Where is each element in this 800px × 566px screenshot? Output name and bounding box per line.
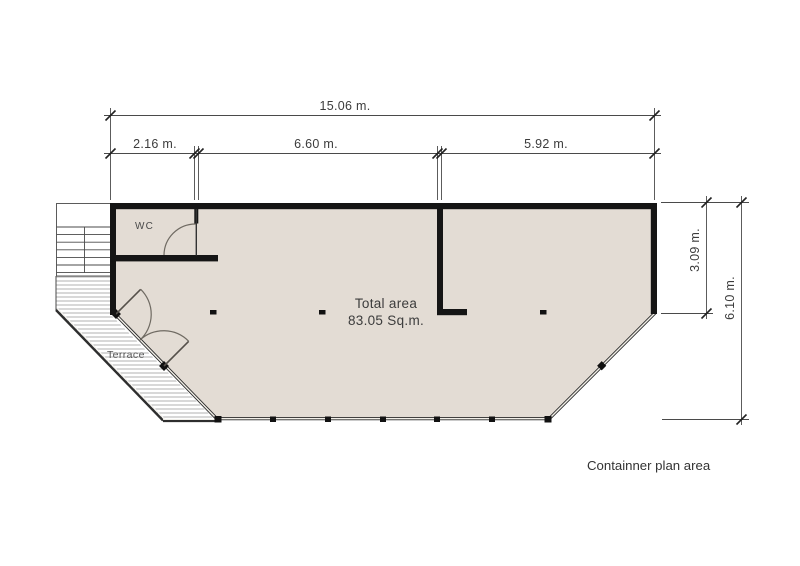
total-area-title: Total area	[315, 296, 457, 313]
floor-plan-drawing	[0, 0, 800, 566]
dimension-segment-middle: 6.60 m.	[276, 137, 356, 151]
dimension-right-total: 6.10 m.	[723, 263, 737, 333]
drawing-caption: Containner plan area	[587, 459, 710, 473]
stairs	[57, 204, 113, 277]
wall-wc-bottom	[110, 255, 218, 261]
wc-room-label: WC	[135, 220, 154, 234]
floor-plan-canvas: 15.06 m. 2.16 m. 6.60 m. 5.92 m. 3.09 m.…	[0, 0, 800, 566]
dimension-right-upper: 3.09 m.	[688, 215, 702, 285]
dimension-total-width: 15.06 m.	[300, 99, 390, 113]
wall-right	[651, 203, 657, 314]
wall-top	[110, 203, 657, 209]
dimension-segment-right: 5.92 m.	[506, 137, 586, 151]
total-area-value: 83.05 Sq.m.	[315, 313, 457, 330]
terrace-label: Terrace	[107, 348, 145, 362]
dimension-segment-left: 2.16 m.	[115, 137, 195, 151]
total-area-label: Total area 83.05 Sq.m.	[315, 296, 457, 329]
